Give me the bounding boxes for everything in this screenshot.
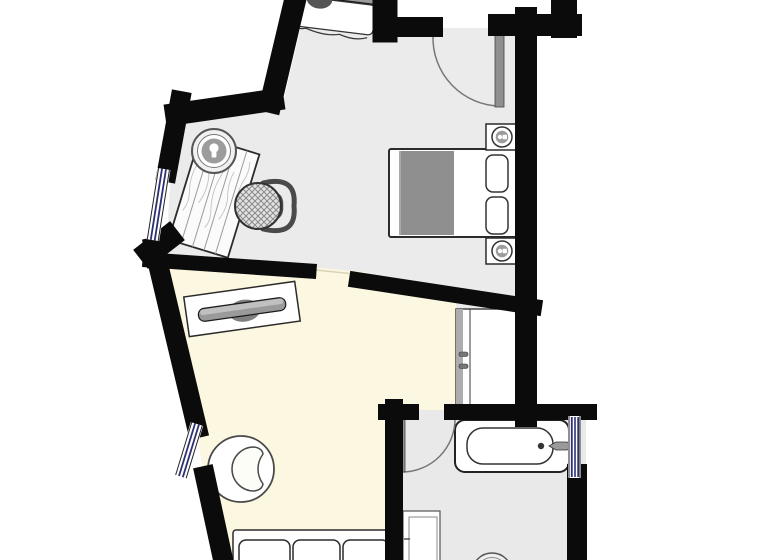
bed-pillow-2: [486, 197, 508, 234]
floor-plan-svg: [0, 0, 779, 560]
floor-plan-page: [0, 0, 779, 560]
nightstand-lamp-icon-bottom: [492, 241, 512, 261]
wall-left-upper: [167, 101, 180, 172]
wardrobe-group: [456, 309, 519, 412]
wardrobe-handle-2: [459, 364, 468, 369]
tub-drain: [538, 443, 544, 449]
wardrobe-handle-1: [459, 352, 468, 357]
wall-nook-top: [176, 100, 273, 114]
nightstand-lamp-icon-top: [492, 127, 512, 147]
bed-blanket: [401, 151, 454, 235]
wardrobe-side-panel: [456, 309, 463, 412]
desk-lamp-icon: [192, 129, 236, 173]
bathtub-group: [455, 420, 572, 472]
sofa-cushion-1: [239, 540, 290, 560]
sofa-cushion-3: [343, 540, 389, 560]
window-bathroom: [568, 416, 581, 478]
sofa-cushion-2: [293, 540, 340, 560]
desk-chair: [235, 183, 281, 229]
wardrobe: [456, 309, 519, 412]
bed-pillow-1: [486, 155, 508, 192]
vanity-group: [403, 511, 440, 560]
entrance-door-leaf: [495, 32, 504, 107]
